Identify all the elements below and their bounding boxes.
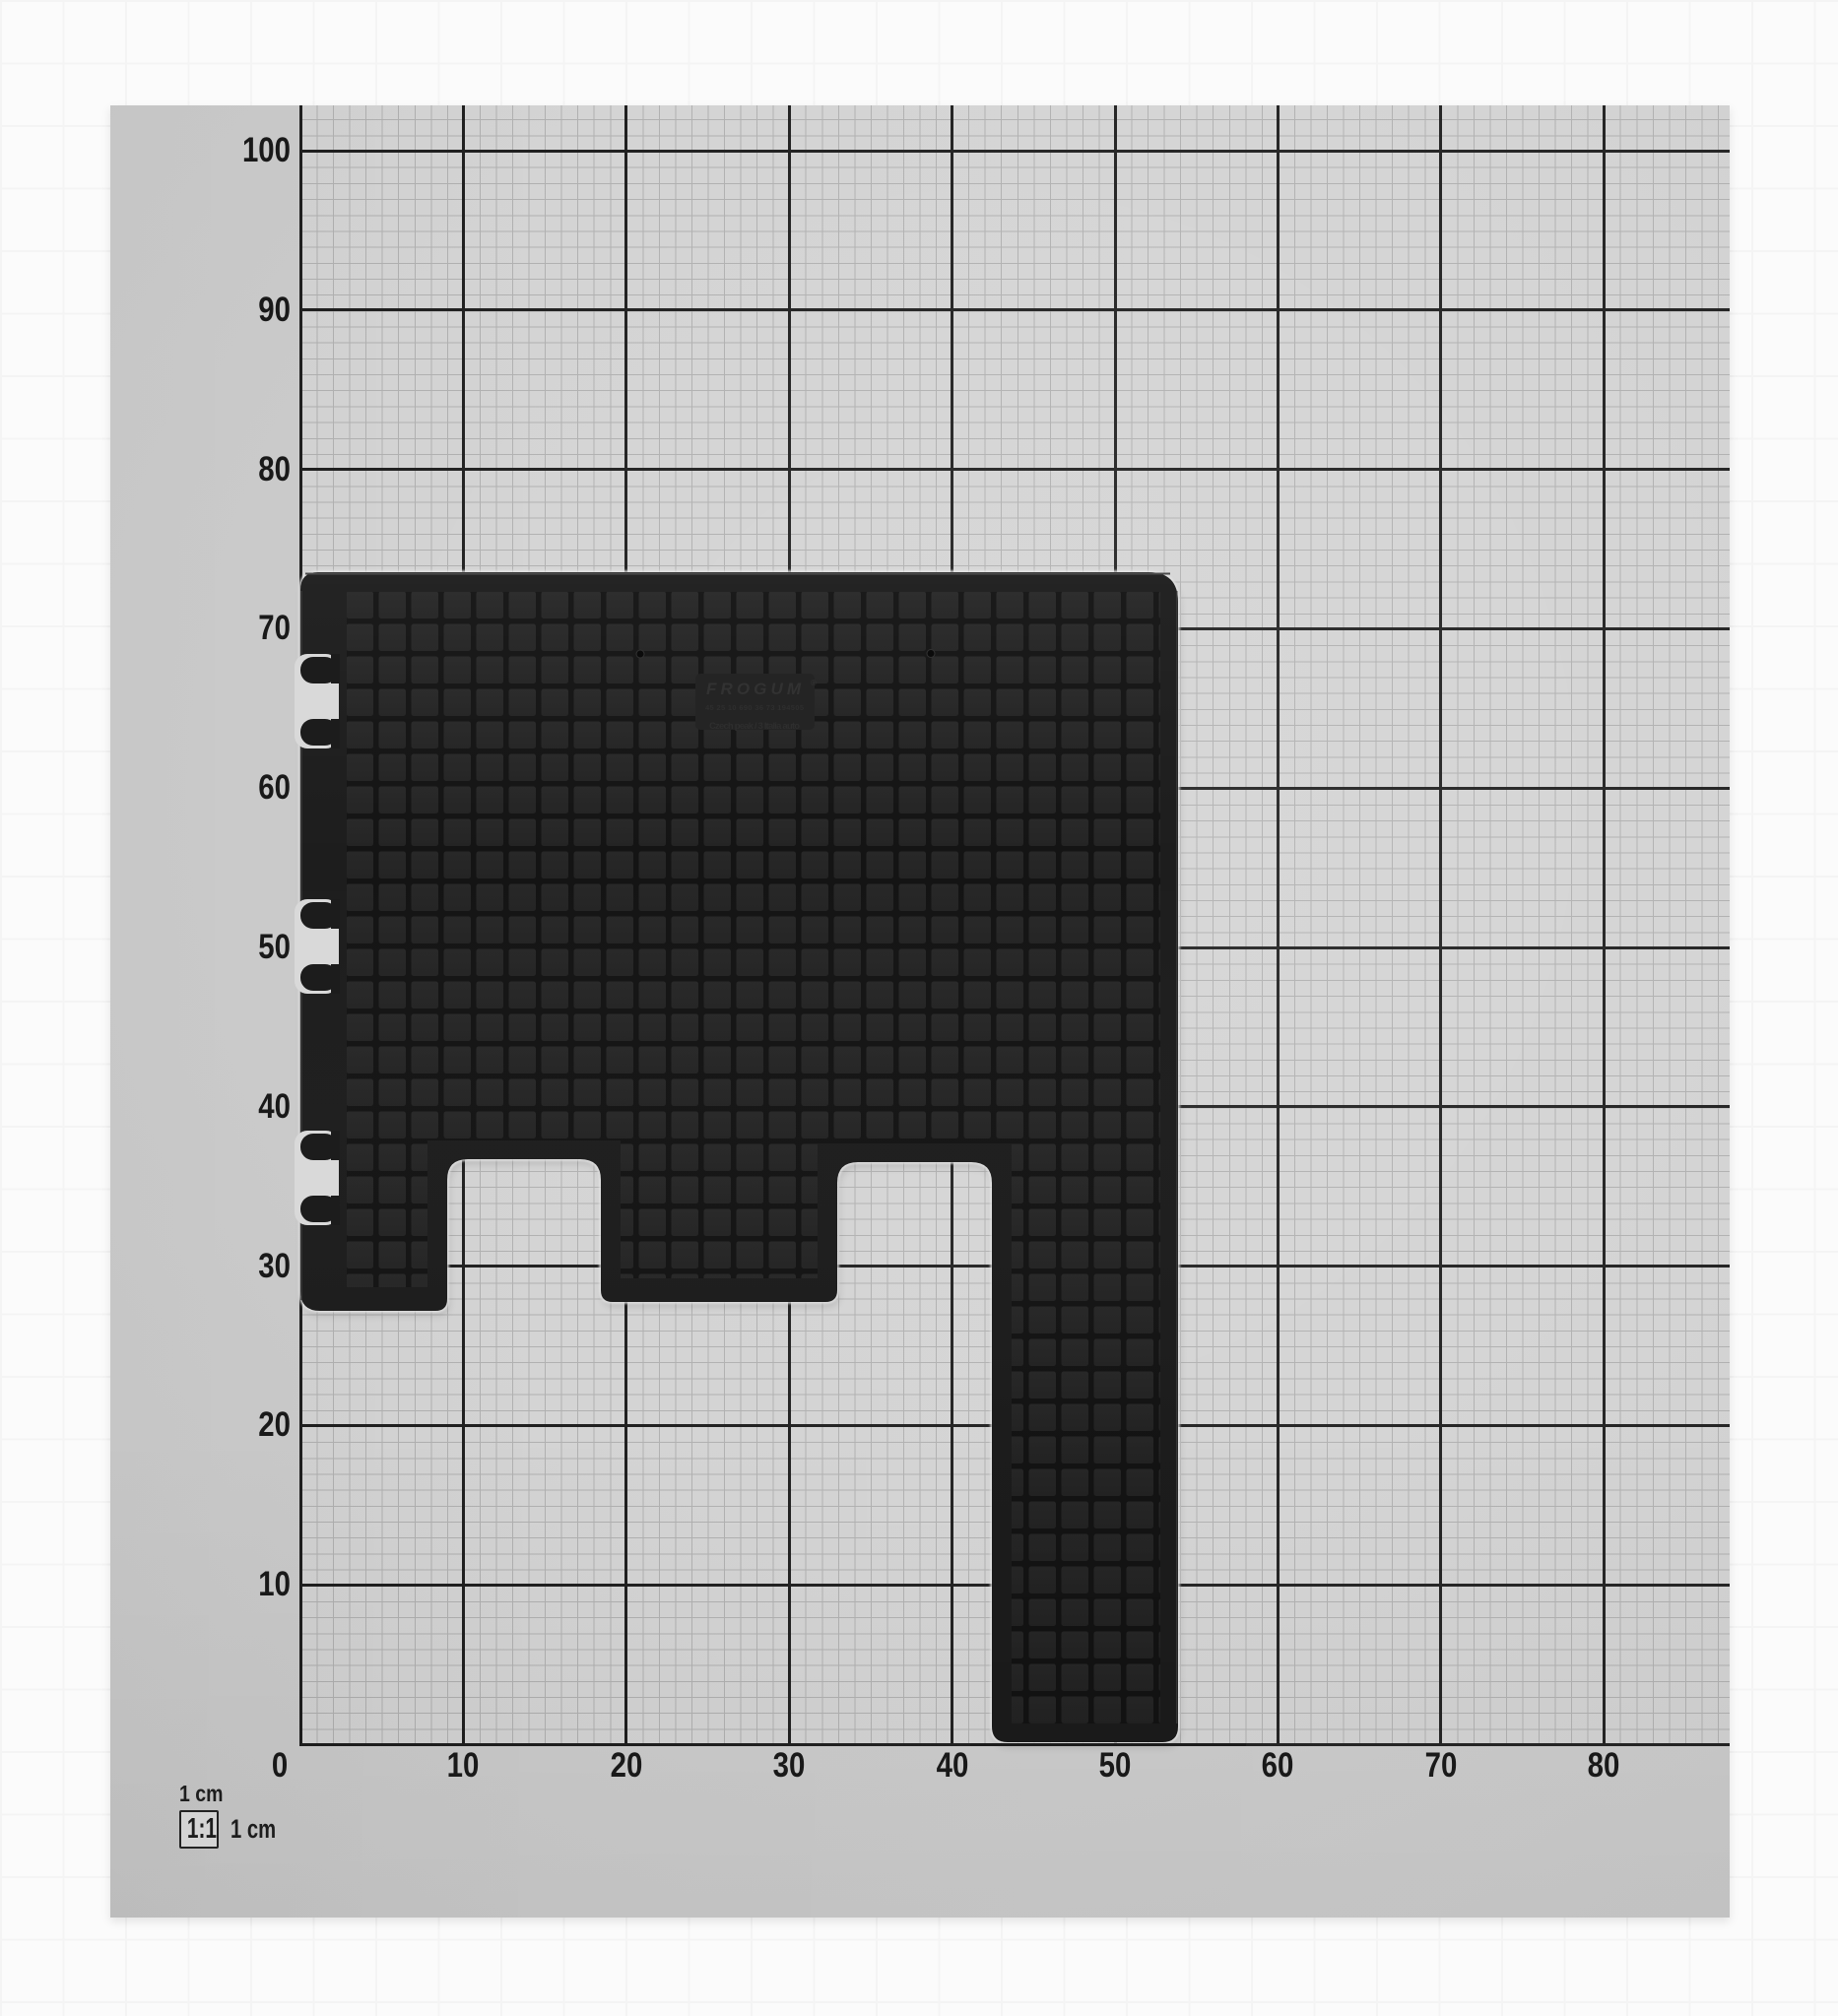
svg-text:45 25 10 690 36 73 194505: 45 25 10 690 36 73 194505	[705, 703, 804, 712]
svg-text:®: ®	[811, 679, 817, 687]
svg-text:FROGUM: FROGUM	[706, 680, 802, 698]
svg-text:Czech peak / 3 Italia auto: Czech peak / 3 Italia auto	[709, 721, 800, 732]
